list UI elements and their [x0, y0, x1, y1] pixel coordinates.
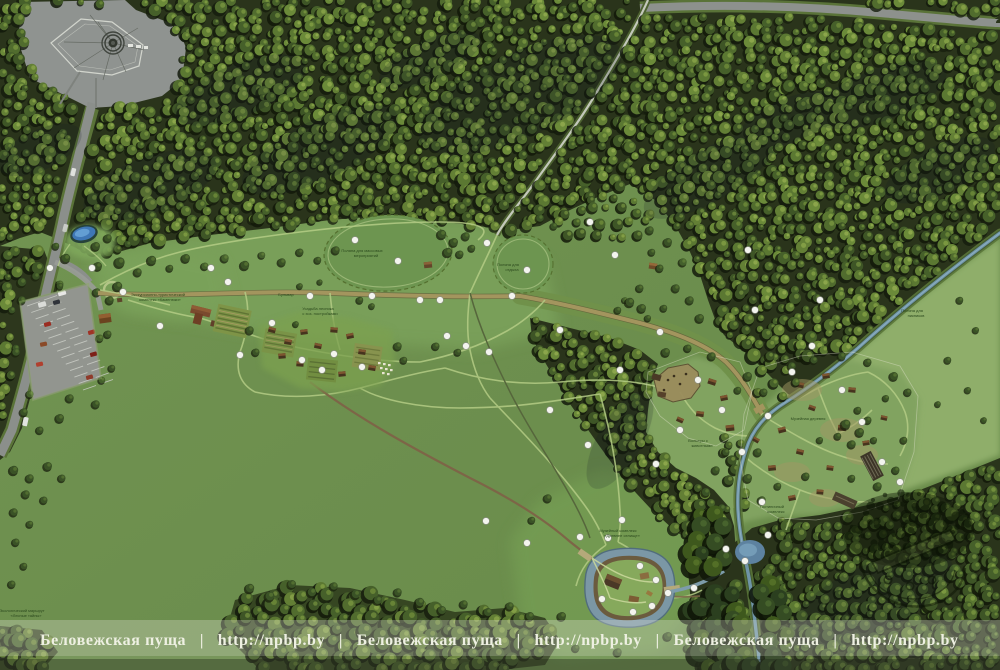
- svg-text:Беловежская пуща | http://: Беловежская пуща | http://npbp.by | Бело…: [40, 632, 958, 649]
- svg-text:мероприятий: мероприятий: [354, 253, 379, 258]
- svg-text:пикников: пикников: [908, 313, 925, 318]
- svg-text:«Лесные тайны»: «Лесные тайны»: [10, 613, 42, 618]
- svg-text:Бульвар: Бульвар: [278, 292, 294, 297]
- svg-text:отдыха: отдыха: [505, 267, 519, 272]
- svg-text:Музейная деревня: Музейная деревня: [791, 416, 826, 421]
- svg-text:с хоз. постройками: с хоз. постройками: [302, 311, 337, 316]
- svg-text:«Древнее селище»: «Древнее селище»: [604, 533, 640, 538]
- svg-text:комплекс: комплекс: [767, 509, 784, 514]
- svg-text:животными: животными: [691, 443, 712, 448]
- svg-text:комплекс «Каменюки»: комплекс «Каменюки»: [139, 297, 181, 302]
